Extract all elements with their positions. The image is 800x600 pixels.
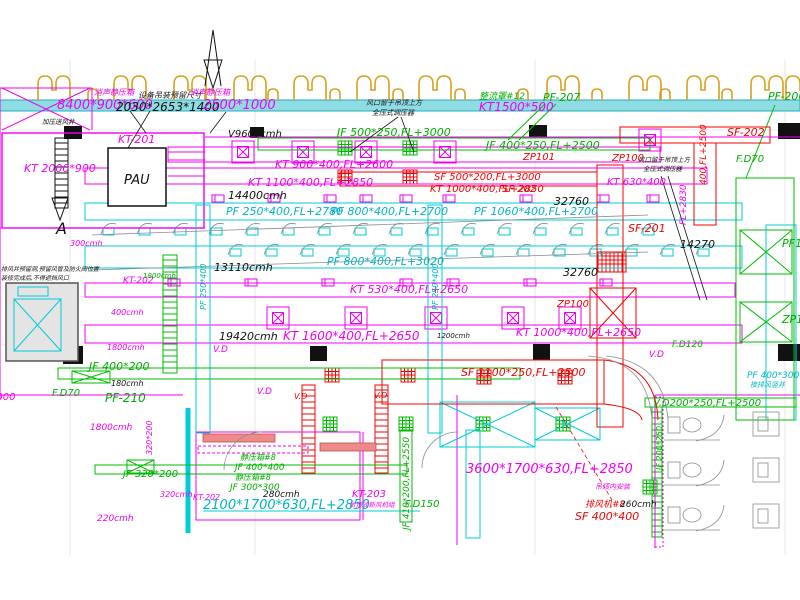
drawing-label: F.D120 xyxy=(672,340,703,350)
drawing-label: ZP10 xyxy=(781,313,800,326)
drawing-label: 320cmh xyxy=(160,490,193,499)
drawing-label: F.D150 xyxy=(405,499,439,510)
drawing-label: 2100*1700*630,FL+2850 xyxy=(203,498,370,513)
drawing-label: PF 250*400 xyxy=(199,263,208,310)
drawing-label: 风口留于吊顶上方 xyxy=(638,156,692,164)
drawing-label: PAU xyxy=(124,173,150,188)
drawing-label: 接排风竖井 xyxy=(750,381,786,389)
drawing-label: 排风井预留洞,预留风管及防火阀位置 xyxy=(1,265,100,273)
drawing-label: JF 500*250,FL+3000 xyxy=(335,126,451,139)
drawing-label: FL+2830 xyxy=(679,184,689,225)
drawing-label: 2000 xyxy=(0,392,15,403)
drawing-label: SF-202 xyxy=(502,184,536,195)
drawing-label: 消声静压箱 xyxy=(190,88,232,97)
drawing-label: PF-206 xyxy=(768,90,800,103)
drawing-label: PF 800*400,FL+2700 xyxy=(331,205,448,218)
drawing-label: KT-203 xyxy=(352,489,386,500)
drawing-label: KT 1600*400,FL+2650 xyxy=(283,329,420,343)
drawing-label: 400cmh xyxy=(111,308,144,317)
drawing-label: 吊顶式新风机组 xyxy=(349,501,395,509)
drawing-label: KT 630*400 xyxy=(607,177,666,188)
drawing-label: 风口留于吊顶上方 xyxy=(366,99,423,107)
drawing-label: PF 250*400 xyxy=(431,263,440,310)
drawing-label: 1800cmh xyxy=(143,272,176,280)
exhaust-duct-layer xyxy=(85,203,796,538)
drawing-label: 1200cmh xyxy=(437,332,470,340)
drawing-label: JF 200*250 xyxy=(655,426,664,472)
drawing-label: V.D xyxy=(649,350,664,360)
drawing-label: PF 250*400,FL+2780 xyxy=(226,205,343,218)
drawing-label: JF 300*300 xyxy=(228,483,280,493)
drawing-label: 消声静压箱 xyxy=(94,88,136,97)
drawing-label: V.D xyxy=(294,392,307,401)
drawing-label: V.D xyxy=(257,387,272,397)
drawing-label: KT 530*400,FL+2650 xyxy=(350,283,468,296)
drawing-label: 400,FL+2500 xyxy=(699,124,709,185)
drawing-label: 320*200 xyxy=(145,420,154,455)
drawing-label: 1800cmh xyxy=(107,343,145,352)
drawing-label: 2500*1000 xyxy=(203,98,276,113)
drawing-label: 全压式调压器 xyxy=(643,165,683,173)
drawing-label: KT 1000*400,FL+2650 xyxy=(516,326,641,339)
drawing-label: F.D70 xyxy=(736,154,764,165)
drawing-label: V9600cmh xyxy=(228,129,282,140)
drawing-label: KT-201 xyxy=(118,133,155,146)
drawing-label: PF10 xyxy=(782,237,800,250)
drawing-label: KT 2000*900 xyxy=(24,162,96,175)
drawing-label: V.D xyxy=(374,391,387,400)
drawing-label: 装修完成后,不得遮挡风口 xyxy=(1,274,70,282)
drawing-label: JF 400*200 xyxy=(87,360,150,373)
drawing-label: 180cmh xyxy=(111,379,144,388)
drawing-label: JF 400*400 xyxy=(233,463,285,473)
drawing-label: KT 1100*400,FL+2850 xyxy=(248,176,373,189)
drawing-label: SF 1100*250,FL+2500 xyxy=(461,366,585,379)
drawing-label: 300cmh xyxy=(70,239,103,248)
cad-drawing-canvas[interactable]: HVAC duct layout plan xyxy=(0,0,800,600)
drawing-label: 静压箱#8 xyxy=(235,473,271,482)
elevator-shaft xyxy=(6,283,78,361)
drawing-label: SF-201 xyxy=(628,222,666,235)
drawing-label: 加压送风井 xyxy=(42,118,75,126)
drawing-label: 32760 xyxy=(563,266,598,279)
drawing-label: 吊顶内安装 xyxy=(595,483,631,491)
drawing-label: 3600*1700*630,FL+2850 xyxy=(466,462,633,477)
drawing-label: 32760 xyxy=(554,195,589,208)
drawing-label: 260cmh xyxy=(620,500,657,510)
drawing-label: SF-202 xyxy=(727,126,765,139)
drawing-label: 14400cmh xyxy=(228,189,287,202)
drawing-label: PF 800*400,FL+3020 xyxy=(327,255,444,268)
drawing-label: F.D70 xyxy=(52,388,80,399)
drawing-label: ZP101 xyxy=(522,152,555,163)
drawing-label: 14270 xyxy=(680,238,715,251)
drawing-label: ZP100 xyxy=(556,299,589,310)
drawing-label: 13110cmh xyxy=(214,261,273,274)
drawing-label: SF 500*200,FL+3000 xyxy=(434,172,541,183)
drawing-label: KT 900*400,FL+2600 xyxy=(275,158,393,171)
drawing-label: V.D200*250,FL+2500 xyxy=(653,398,761,409)
fresh-air-duct-layer xyxy=(58,104,796,522)
drawing-label: 全压式调压器 xyxy=(372,109,415,117)
drawing-label: JF 320*200 xyxy=(121,469,178,480)
drawing-label: JF 400*250,FL+2500 xyxy=(484,139,600,152)
equipment-bars xyxy=(203,434,376,451)
drawing-label: 19420cmh xyxy=(219,330,278,343)
drawing-label: V.D xyxy=(213,345,228,355)
drawing-label: JF 410*200,FL+2550 xyxy=(402,437,412,532)
drawing-label: PF-210 xyxy=(105,391,146,405)
drawing-label: 静压箱#8 xyxy=(240,453,276,462)
drawing-label: PF-207 xyxy=(543,91,580,104)
drawing-label: SF 400*400 xyxy=(575,510,639,523)
drawing-label: A xyxy=(55,219,67,238)
drawing-label: 1800cmh xyxy=(90,423,133,433)
drawing-label: PF 400*300 xyxy=(747,371,800,381)
drawing-label: 220cmh xyxy=(97,514,134,524)
